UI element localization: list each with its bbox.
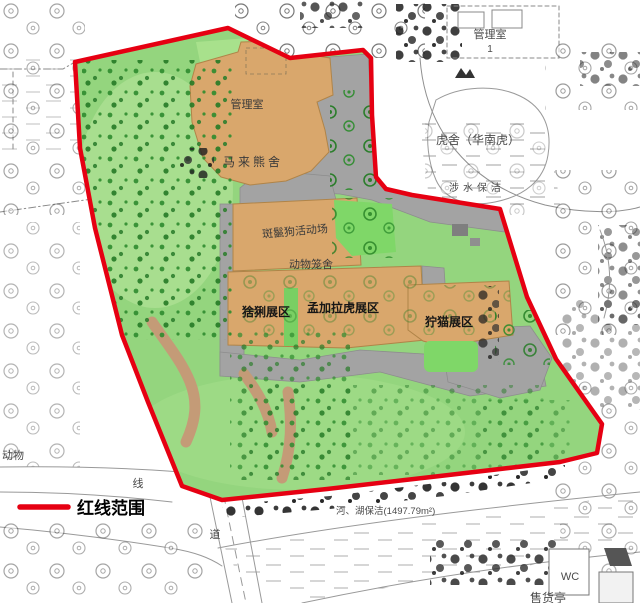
legend-label: 红线范围 — [77, 498, 145, 518]
site-plan-map: 管理室 马来熊舍 斑鬣狗活动场 动物笼舍 猞猁展区 孟加拉虎展区 狞猫展区 管理… — [0, 0, 640, 603]
label-bengal-tiger-zone: 孟加拉虎展区 — [307, 300, 379, 315]
label-road-dao: 道 — [210, 527, 221, 541]
label-wc: WC — [561, 571, 579, 583]
label-wading-cleaning: 涉水保洁 — [449, 181, 505, 194]
label-caracal-zone: 狞猫展区 — [425, 314, 473, 329]
label-animal-cages: 动物笼舍 — [289, 257, 333, 271]
label-lynx-zone: 猞猁展区 — [241, 304, 290, 319]
label-road-xian: 线 — [133, 476, 144, 490]
label-bear-house: 马来熊舍 — [223, 154, 283, 169]
label-animal-partial: 动物 — [2, 448, 24, 462]
label-kiosk: 售货亭 — [530, 590, 566, 603]
label-river-cleaning: 河、湖保洁(1497.79m²) — [336, 505, 435, 517]
label-management-outer: 管理室 — [474, 27, 507, 41]
label-management-outer-num: 1 — [487, 44, 493, 55]
label-management-inner: 管理室 — [231, 97, 264, 111]
zoo-site-plan: 管理室 马来熊舍 斑鬣狗活动场 动物笼舍 猞猁展区 孟加拉虎展区 狞猫展区 管理… — [0, 0, 640, 603]
label-tiger-house: 虎舍（华南虎） — [436, 132, 520, 147]
